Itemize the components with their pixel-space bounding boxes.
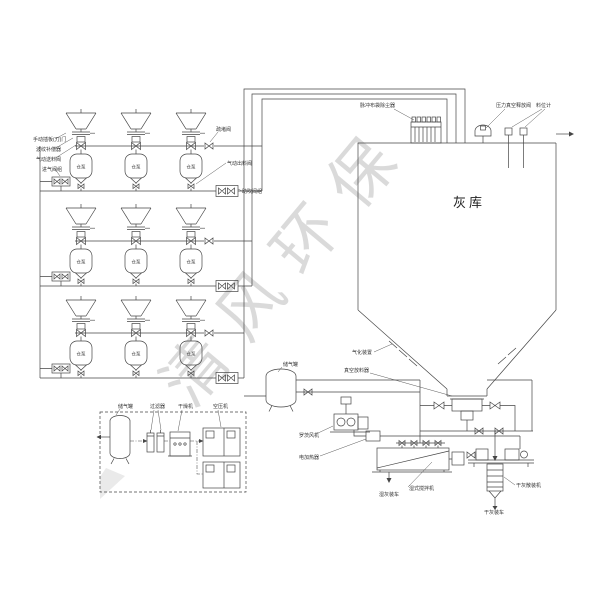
pump-unit (66, 296, 96, 378)
fluidizer-pads (389, 341, 516, 366)
label-roots-blower: 罗茨风机 (299, 432, 319, 439)
label-dry-ash-truck: 干灰装车 (484, 509, 504, 516)
label-assist-blow-group: 助吹阀组 (242, 188, 262, 195)
label-wet-mixer: 湿式搅拌机 (409, 485, 434, 492)
pump-unit (176, 109, 206, 191)
pump-unit (121, 204, 151, 286)
label-bellows: 波纹补偿器 (36, 146, 61, 153)
electric-heater (366, 431, 520, 449)
label-fluidizer: 气化装置 (352, 349, 372, 356)
dust-collector (411, 117, 441, 143)
label-electric-heater: 电加热器 (299, 454, 319, 461)
label-dryer: 干燥机 (178, 403, 193, 410)
pump-unit (121, 296, 151, 378)
pump-unit (176, 204, 206, 286)
label-level-gauge: 料位计 (536, 102, 551, 109)
mid-air-tank (244, 369, 296, 412)
label-dry-ash-loader: 干灰散装机 (516, 482, 541, 489)
pump-unit (121, 109, 151, 191)
label-air-compressor: 空压机 (213, 403, 228, 410)
label-manual-gate: 手动插板(刀)门 (33, 136, 66, 143)
level-gauges (505, 128, 527, 168)
label-feed-valve: 气动送料阀 (36, 156, 61, 163)
roots-blower (330, 397, 370, 436)
ash-handling-diagram: 仓泵 清风环保 (0, 0, 600, 600)
bulk-loader (467, 431, 534, 510)
label-dust-collector: 脉冲布袋除尘器 (360, 102, 395, 109)
label-vacuum-discharger: 真空放料器 (344, 367, 369, 374)
label-mid-air-tank: 储气罐 (283, 361, 298, 368)
label-unblock-valve: 疏堵阀 (216, 126, 231, 133)
label-pv-valve: 压力真空释放阀 (496, 102, 531, 109)
label-inlet-valve-group: 进气阀组 (42, 166, 62, 173)
label-discharge-valve: 气动出料阀 (227, 160, 252, 167)
support-frame (296, 380, 533, 443)
pressure-vacuum-valve (475, 125, 491, 143)
pump-unit (66, 204, 96, 286)
watermark-fragment (100, 468, 125, 499)
label-filter: 过滤器 (150, 403, 165, 410)
discharge-assembly (420, 396, 515, 431)
pump-unit (66, 109, 96, 191)
label-wet-ash-truck: 湿灰装车 (379, 491, 399, 498)
diagram-canvas: 仓泵 清风环保 (0, 0, 600, 600)
inlet-air-valve-groups (40, 177, 70, 378)
silo-label: 灰库 (453, 195, 485, 210)
label-air-tank: 储气罐 (118, 403, 133, 410)
